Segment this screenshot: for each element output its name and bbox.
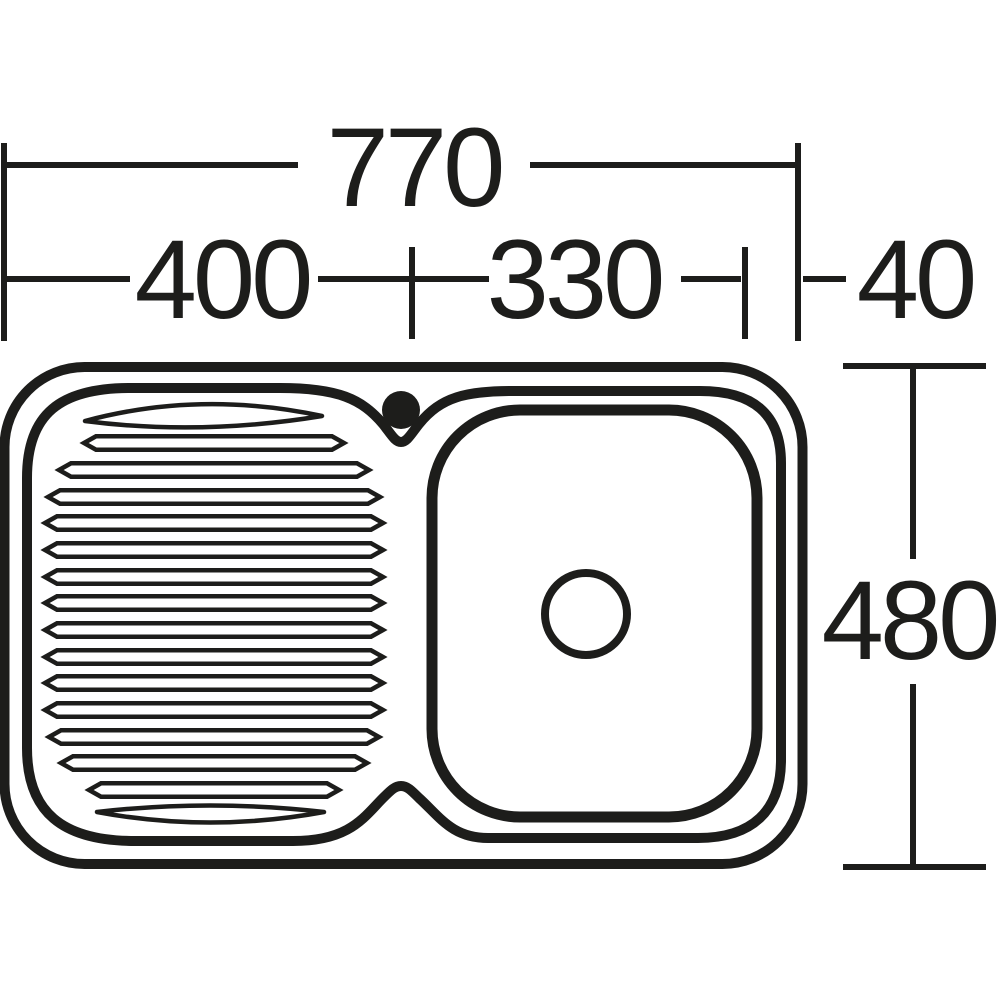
drain-hole [545,573,627,655]
drainer-rib [45,596,383,610]
drainer-rib [59,463,369,477]
diagram-canvas: 770 400 330 40 480 [0,0,1000,1000]
drainer-rib [45,543,383,557]
drainer-rib [45,516,383,530]
tap-hole-icon [382,391,420,429]
depth-dimension: 480 [822,366,997,867]
drainer-rib [89,783,339,797]
drainer-rib [45,623,383,637]
drainer-rib [45,703,383,717]
sink-dimension-diagram: 770 400 330 40 480 [0,0,1000,1000]
sink-top-view [5,367,803,864]
bowl-width-label: 330 [487,217,662,342]
segment-width-dimensions: 400 330 40 [4,217,973,342]
drainer-rib [45,650,383,664]
overall-width-label: 770 [327,105,502,230]
drainer-rib [48,490,380,504]
drainer-rib [61,756,367,770]
right-offset-label: 40 [857,217,974,342]
drainer-rib [45,676,383,690]
drainer-width-label: 400 [135,217,310,342]
overall-depth-label: 480 [822,558,997,683]
drainer-rib [84,436,344,450]
drainer-rib [45,570,383,584]
drainer-rib [49,730,379,744]
overall-width-dimension: 770 [4,105,798,341]
